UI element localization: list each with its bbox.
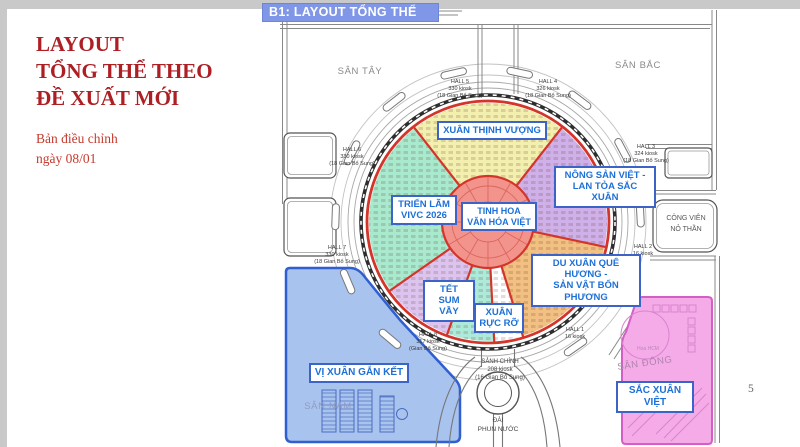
hall3-label: HALL 3 324 kiosk (18 Gian Bổ Sung) — [612, 144, 680, 165]
zone-label-xuan-thinh-vuong: XUÂN THỊNH VƯỢNG — [437, 121, 547, 140]
zone-label-xuan-ruc-ro: XUÂN RỰC RỠ — [474, 303, 524, 333]
plaza-label-west: SÂN TÂY — [328, 66, 392, 77]
slide-subtitle: Bản điều chỉnh ngày 08/01 — [36, 129, 236, 170]
hall4-label: HALL 4 326 kiosk (18 Gian Bổ Sung) — [516, 79, 580, 100]
hall8-label: HALL 8 317 kiosk (Gian Bổ Sung) — [394, 332, 462, 353]
fountain-label: ĐÀI PHUN NƯỚC — [465, 416, 531, 434]
hall6-label: HALL 6 330 kiosk (18 Gian Bổ Sung) — [318, 147, 386, 168]
map-header-title: B1: LAYOUT TỔNG THỂ — [269, 5, 417, 19]
slide: LAYOUT TỔNG THỂ THEO ĐỀ XUẤT MỚI Bản điề… — [0, 0, 800, 447]
main-hall-label: SẢNH CHÍNH 208 kiosk (16 Gian Bổ Sung) — [460, 358, 540, 382]
park-label: CÔNG VIÊN NỎ THẦN — [657, 214, 715, 235]
zone-label-nong-san-viet: NÔNG SẢN VIỆT - LAN TỎA SẮC XUÂN — [554, 166, 656, 208]
page-number: 5 — [748, 383, 754, 395]
hall1-label: HALL 1 16 kiosk — [550, 327, 600, 341]
site-map: B1: LAYOUT TỔNG THỂ SÂN TÂY SÂN BẮC SÂN … — [260, 0, 800, 447]
plaza-label-south: SÂN NAM — [296, 401, 360, 412]
slide-title: LAYOUT TỔNG THỂ THEO ĐỀ XUẤT MỚI — [36, 31, 261, 112]
zone-label-tinh-hoa: TINH HOA VĂN HÓA VIỆT — [461, 202, 537, 231]
hall7-label: HALL 7 330 kiosk (18 Gian Bổ Sung) — [303, 245, 371, 266]
map-header: B1: LAYOUT TỔNG THỂ — [262, 3, 439, 22]
zone-label-tet-sum-vay: TẾT SUM VẦY — [423, 280, 475, 322]
plaza-label-north: SÂN BẮC — [606, 60, 670, 71]
zone-label-sac-xuan-viet: SẮC XUÂN VIỆT — [616, 381, 694, 413]
zone-label-vi-xuan-gan-ket: VỊ XUÂN GẮN KẾT — [309, 363, 409, 383]
zone-label-du-xuan: DU XUÂN QUÊ HƯƠNG - SẢN VẬT BỐN PHƯƠNG — [531, 254, 641, 307]
zone-label-trien-lam: TRIỂN LÃM VIVC 2026 — [391, 195, 457, 225]
hoa-hcm-label: Hoa HCM — [628, 346, 668, 352]
app-chrome-left — [0, 0, 7, 447]
hall5-label: HALL 5 330 kiosk (18 Gian Bổ Sung) — [428, 79, 492, 100]
